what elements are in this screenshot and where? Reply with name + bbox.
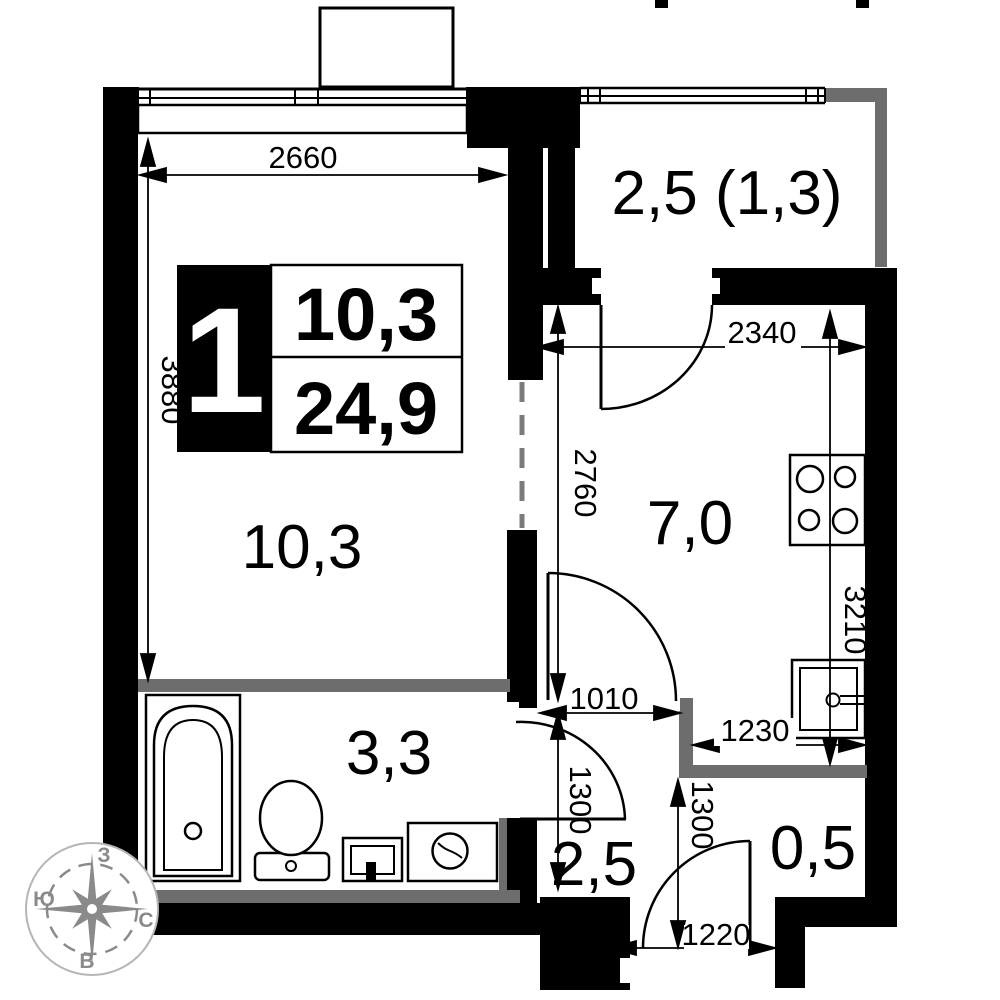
- floorplan-page: 2660 3880 2340 2760 3210 1010 1300 1300 …: [0, 0, 1000, 1000]
- unit-rooms-count: 1: [182, 276, 265, 444]
- dim-kitchen-bottom: 1230: [721, 713, 790, 748]
- toilet-icon: [255, 781, 329, 880]
- unit-info-card: 1 10,3 24,9: [177, 265, 462, 452]
- upper-balcony-outline: [320, 0, 869, 87]
- stove-icon: [790, 455, 865, 545]
- unit-living-area: 10,3: [294, 273, 438, 356]
- compass-north: С: [138, 909, 153, 932]
- compass-south: Ю: [33, 888, 55, 911]
- compass-rose: З Ю С В: [26, 843, 158, 975]
- dim-entry-door: 1220: [682, 917, 751, 952]
- dim-living-width: 2660: [269, 140, 338, 175]
- floorplan-drawing: 2660 3880 2340 2760 3210 1010 1300 1300 …: [0, 0, 1000, 1000]
- compass-west: З: [97, 844, 110, 867]
- unit-total-area: 24,9: [294, 367, 438, 450]
- bathroom-sink-icon: [343, 838, 402, 881]
- washing-machine-icon: [408, 823, 497, 881]
- living-room-label: 10,3: [242, 513, 363, 582]
- compass-east: В: [79, 950, 94, 973]
- closet-label: 0,5: [770, 814, 856, 883]
- balcony-door: [601, 305, 712, 409]
- dim-kitchen-height: 2760: [568, 449, 603, 518]
- kitchen-sink-icon: [792, 660, 865, 738]
- bathtub-icon: [146, 695, 240, 881]
- dim-entry-height: 1300: [685, 781, 720, 850]
- bathroom-label: 3,3: [346, 719, 432, 788]
- kitchen-label: 7,0: [647, 489, 733, 558]
- balcony-window: [580, 88, 825, 103]
- living-room-window: [138, 87, 467, 133]
- dim-kitchen-right-height: 3210: [838, 586, 873, 655]
- dim-hall-height: 1300: [563, 766, 598, 835]
- dim-kitchen-door: 1010: [570, 681, 639, 716]
- dim-kitchen-width: 2340: [728, 315, 797, 350]
- hallway-label: 2,5: [551, 830, 637, 899]
- balcony-label: 2,5 (1,3): [612, 159, 843, 228]
